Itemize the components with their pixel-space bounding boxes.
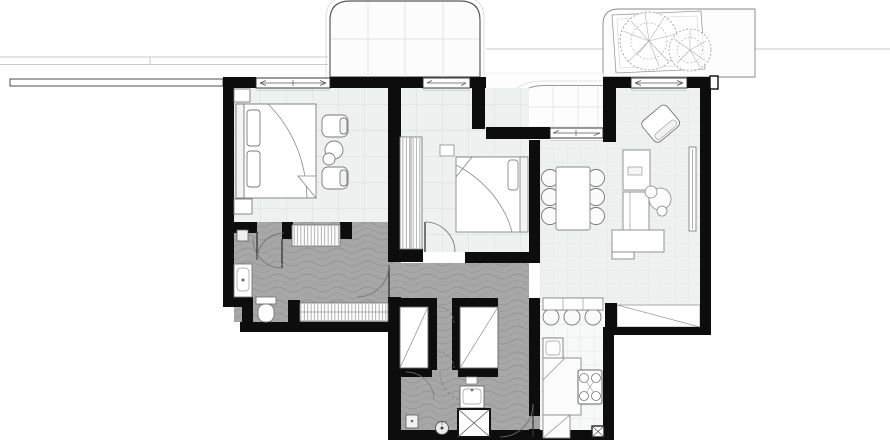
pillow (508, 160, 518, 190)
tree-large-icon (620, 12, 678, 70)
pillow (247, 110, 260, 146)
floor-plan-canvas (0, 0, 890, 440)
master-bed (236, 104, 316, 198)
terrace (603, 9, 755, 77)
radiator (689, 147, 696, 231)
wc-vanity (234, 264, 252, 297)
tree-small-icon (669, 29, 711, 71)
entry-bench (292, 225, 340, 246)
party-wall-strip (10, 79, 223, 86)
kitchen-floor-drain (592, 426, 604, 437)
cabinet (623, 192, 649, 232)
balcony-canopy (326, 0, 484, 77)
closet-shaft-2 (460, 307, 498, 368)
double-bed-2 (456, 157, 528, 232)
floor-plan-drawing (0, 0, 890, 440)
hall-wardrobe (300, 303, 388, 321)
closet-shaft-1 (400, 307, 428, 368)
dining-furniture (542, 167, 605, 230)
built-in-wardrobe (400, 137, 422, 249)
gas-stove (578, 370, 602, 404)
pillow (247, 151, 260, 187)
switch-box (237, 230, 248, 241)
bar-counter (543, 298, 603, 310)
desk (623, 150, 650, 190)
shower (458, 409, 490, 437)
wall-heater (406, 415, 418, 428)
nightstand (440, 145, 454, 156)
nightstand-bottom (234, 199, 252, 214)
armchair-2 (322, 167, 348, 189)
nightstand-top (234, 89, 250, 102)
kitchen-sink (543, 338, 563, 358)
bar-stools (543, 309, 601, 325)
pillar (710, 76, 718, 89)
dining-table (556, 167, 590, 230)
wc-toilet (256, 297, 276, 322)
bath-floor-drain (436, 422, 449, 435)
service-niche (617, 305, 700, 327)
armchair-1 (322, 115, 348, 137)
